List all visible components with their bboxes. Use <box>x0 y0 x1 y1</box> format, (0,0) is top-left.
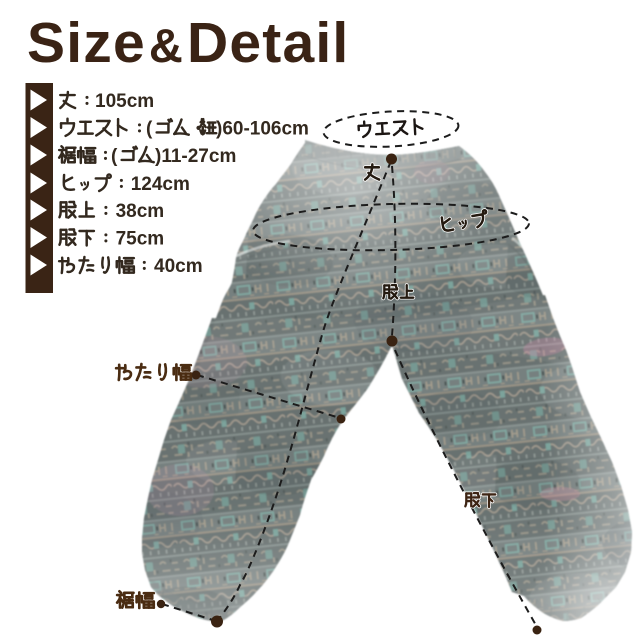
svg-text:Size&Detail: Size&Detail <box>27 11 349 75</box>
svg-text:(: ( <box>146 118 153 139</box>
svg-text:(: ( <box>111 146 118 167</box>
svg-text:)11-27cm: )11-27cm <box>155 146 236 167</box>
svg-text:40cm: 40cm <box>154 256 203 277</box>
svg-text:105cm: 105cm <box>95 91 154 112</box>
svg-text:38cm: 38cm <box>116 201 165 222</box>
svg-text:)60-106cm: )60-106cm <box>216 118 309 139</box>
svg-text:124cm: 124cm <box>131 174 190 195</box>
svg-text:75cm: 75cm <box>116 228 165 249</box>
